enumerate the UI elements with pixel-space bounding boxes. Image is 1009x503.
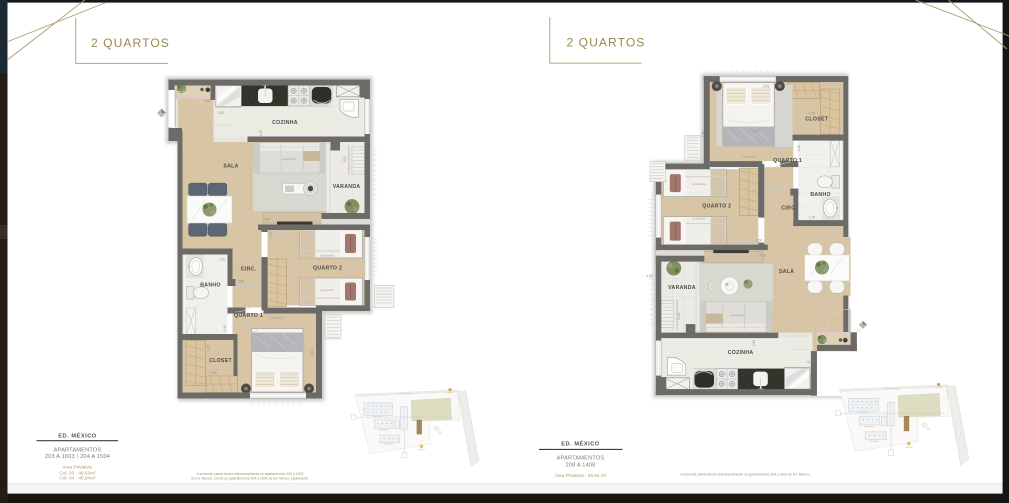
svg-text:1.50: 1.50 — [809, 112, 816, 116]
svg-text:3.31: 3.31 — [343, 156, 347, 163]
svg-text:4.25: 4.25 — [759, 254, 766, 258]
svg-text:Col. 03 - 46,62m²: Col. 03 - 46,62m² — [59, 470, 96, 475]
svg-text:203 A 1603 / 204 A 1504: 203 A 1603 / 204 A 1504 — [45, 454, 110, 460]
svg-text:0.60: 0.60 — [238, 279, 245, 283]
svg-text:2 QUARTOS: 2 QUARTOS — [567, 36, 646, 50]
svg-text:COZINHA: COZINHA — [728, 350, 754, 356]
svg-text:CIRC.: CIRC. — [781, 205, 797, 211]
svg-text:2 QUARTOS: 2 QUARTOS — [91, 36, 170, 50]
svg-text:2.43: 2.43 — [310, 350, 314, 357]
svg-text:do Ed. México, sendo os aparta: do Ed. México, sendo os apartamentos 204… — [191, 476, 309, 480]
svg-text:SALA: SALA — [223, 164, 238, 170]
svg-text:ED. MÉXICO: ED. MÉXICO — [58, 432, 97, 440]
svg-text:4.05: 4.05 — [263, 217, 270, 221]
svg-text:ED. MÉXICO: ED. MÉXICO — [561, 439, 600, 447]
svg-text:VARANDA: VARANDA — [668, 285, 696, 291]
svg-text:SALA: SALA — [779, 269, 794, 275]
svg-text:APARTAMENTOS: APARTAMENTOS — [54, 448, 102, 454]
svg-text:1.00: 1.00 — [204, 99, 211, 103]
svg-text:1.50: 1.50 — [259, 130, 263, 137]
svg-text:CLOSET: CLOSET — [805, 117, 828, 123]
svg-text:QUARTO 1: QUARTO 1 — [773, 158, 802, 164]
svg-text:2.31: 2.31 — [677, 313, 681, 320]
svg-text:APARTAMENTOS: APARTAMENTOS — [557, 456, 605, 462]
svg-text:3.00: 3.00 — [210, 371, 217, 375]
svg-text:Área Privativa:: Área Privativa: — [62, 463, 92, 469]
svg-text:BANHO: BANHO — [810, 192, 831, 198]
svg-text:2.45: 2.45 — [701, 131, 705, 138]
svg-text:CIRC.: CIRC. — [241, 266, 257, 272]
svg-text:2.30: 2.30 — [797, 145, 801, 152]
svg-text:Col. 04 - 45,94m²: Col. 04 - 45,94m² — [59, 476, 96, 481]
svg-text:A presente planta ilustra refe: A presente planta ilustra referencialmen… — [197, 472, 304, 476]
svg-text:4.20: 4.20 — [807, 360, 814, 364]
svg-text:QUARTO 2: QUARTO 2 — [313, 265, 342, 271]
svg-text:Área Privativa - 45,94 m²: Área Privativa - 45,94 m² — [555, 472, 607, 478]
svg-text:2.60: 2.60 — [756, 239, 763, 243]
svg-text:2.30: 2.30 — [223, 325, 227, 332]
svg-text:3.00: 3.00 — [753, 129, 760, 133]
svg-text:2.45: 2.45 — [763, 85, 770, 89]
svg-text:QUARTO 2: QUARTO 2 — [702, 203, 731, 209]
svg-text:VARANDA: VARANDA — [333, 184, 361, 190]
svg-text:QUARTO 1: QUARTO 1 — [234, 313, 263, 319]
svg-text:CLOSET: CLOSET — [209, 358, 232, 364]
svg-text:COZINHA: COZINHA — [272, 120, 298, 126]
svg-text:1.20: 1.20 — [809, 216, 816, 220]
svg-text:208 A 1408: 208 A 1408 — [566, 462, 596, 468]
svg-text:2.90: 2.90 — [269, 231, 273, 238]
svg-text:4.20: 4.20 — [218, 111, 225, 115]
svg-text:0.90: 0.90 — [646, 275, 653, 279]
svg-text:A presente planta ilustra refe: A presente planta ilustra referencialmen… — [680, 473, 810, 477]
svg-text:BANHO: BANHO — [200, 283, 221, 289]
svg-text:1.50: 1.50 — [752, 340, 756, 347]
svg-text:1.20: 1.20 — [218, 257, 225, 261]
svg-text:1.60: 1.60 — [207, 345, 211, 352]
